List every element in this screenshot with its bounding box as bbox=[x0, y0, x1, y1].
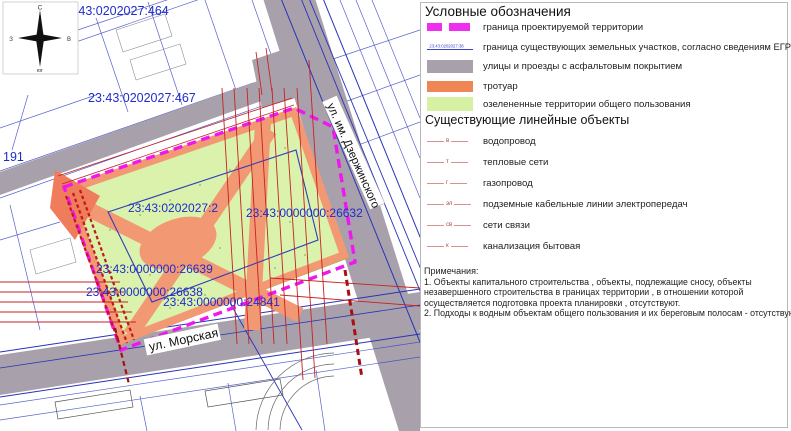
note-line: 1. Объекты капитального строительства , … bbox=[424, 277, 786, 287]
power-cable-swatch: эл bbox=[427, 201, 473, 207]
legend-item-egrn-boundary: 23:43:0202027:38 граница существующих зе… bbox=[427, 39, 791, 53]
line-marker: т bbox=[446, 159, 449, 165]
egrn-sample-number: 23:43:0202027:38 bbox=[427, 43, 466, 48]
red-line-icon bbox=[450, 183, 467, 184]
sidewalk-swatch bbox=[427, 81, 473, 92]
green-bar-icon bbox=[427, 97, 473, 111]
legend-item-power-cable-line: эл подземные кабельные линии электропере… bbox=[427, 197, 688, 211]
legend-item-label: граница существующих земельных участков,… bbox=[483, 41, 791, 52]
line-marker: св bbox=[446, 222, 452, 228]
orange-bar-icon bbox=[427, 81, 473, 92]
legend-item-label: подземные кабельные линии электропередач bbox=[483, 199, 688, 210]
gray-bar-icon bbox=[427, 60, 473, 73]
egrn-boundary-swatch: 23:43:0202027:38 bbox=[427, 43, 473, 50]
line-marker: г bbox=[446, 180, 448, 186]
red-line-icon bbox=[451, 162, 468, 163]
legend-item-label: тепловые сети bbox=[483, 157, 548, 168]
notes-title: Примечания: bbox=[424, 266, 786, 277]
line-marker: к bbox=[446, 243, 449, 249]
cadastral-map: ул. им. Дзержинского ул. Морская 23:43:0… bbox=[0, 0, 420, 431]
compass: С З В юг bbox=[3, 2, 78, 74]
legend-item-water-line: в водопровод bbox=[427, 134, 536, 148]
legend-item-gas-line: г газопровод bbox=[427, 176, 533, 190]
line-marker: в bbox=[446, 138, 449, 144]
red-line-icon bbox=[427, 141, 444, 142]
red-line-icon bbox=[427, 204, 444, 205]
compass-east-label: В bbox=[67, 37, 71, 43]
legend-item-label: улицы и проезды с асфальтовым покрытием bbox=[483, 61, 682, 72]
parcel-label: 23:43:0202027:2 bbox=[128, 201, 218, 215]
red-line-icon bbox=[454, 225, 471, 226]
plan-sheet: ул. им. Дзержинского ул. Морская 23:43:0… bbox=[0, 0, 791, 431]
red-line-icon bbox=[427, 183, 444, 184]
red-line-icon bbox=[454, 204, 471, 205]
legend-title: Условные обозначения bbox=[425, 4, 571, 19]
magenta-dash-icon bbox=[449, 23, 470, 31]
magenta-dash-icon bbox=[427, 23, 442, 31]
water-line-swatch: в bbox=[427, 138, 473, 144]
note-line: незавершенного строительства в границах … bbox=[424, 287, 786, 297]
legend-item-label: сети связи bbox=[483, 220, 530, 231]
legend-item-label: газопровод bbox=[483, 178, 533, 189]
green-territory-swatch bbox=[427, 97, 473, 111]
compass-west-label: З bbox=[9, 37, 13, 43]
red-line-icon bbox=[427, 225, 444, 226]
notes-block: Примечания: 1. Объекты капитального стро… bbox=[424, 266, 786, 318]
red-line-icon bbox=[427, 246, 444, 247]
compass-south-label: юг bbox=[37, 68, 43, 74]
red-line-icon bbox=[451, 246, 468, 247]
heating-line-swatch: т bbox=[427, 159, 473, 165]
parcel-label: 23:43:0000000:24841 bbox=[163, 295, 280, 309]
compass-north-label: С bbox=[38, 5, 43, 12]
red-line-icon bbox=[427, 162, 444, 163]
legend-item-label: граница проектируемой территории bbox=[483, 22, 643, 33]
legend-item-label: водопровод bbox=[483, 136, 536, 147]
parcel-label: 23:43:0202027:467 bbox=[88, 91, 196, 105]
legend-item-label: канализация бытовая bbox=[483, 241, 580, 252]
red-line-icon bbox=[451, 141, 468, 142]
egrn-line-icon: 23:43:0202027:38 bbox=[427, 43, 473, 50]
note-line: 2. Подходы к водным объектам общего поль… bbox=[424, 308, 786, 318]
legend-item-label: озелененные территории общего пользовани… bbox=[483, 99, 691, 110]
legend-item-green-territory: озелененные территории общего пользовани… bbox=[427, 97, 691, 111]
road-swatch bbox=[427, 60, 473, 73]
legend-item-heating-line: т тепловые сети bbox=[427, 155, 548, 169]
legend-item-label: тротуар bbox=[483, 81, 518, 92]
parcel-label: 23:43:0000000:26632 bbox=[246, 206, 363, 220]
legend-linear-section-title: Существующие линейные объекты bbox=[425, 113, 629, 127]
gas-line-swatch: г bbox=[427, 180, 473, 186]
line-marker: эл bbox=[446, 201, 452, 207]
legend-item-sidewalk: тротуар bbox=[427, 79, 518, 93]
legend-item-telecom-line: св сети связи bbox=[427, 218, 530, 232]
parcel-label: 191 bbox=[3, 150, 24, 164]
legend-item-roads: улицы и проезды с асфальтовым покрытием bbox=[427, 59, 682, 73]
project-boundary-swatch bbox=[427, 23, 473, 31]
telecom-line-swatch: св bbox=[427, 222, 473, 228]
note-line: осуществляется подготовка проекта планир… bbox=[424, 298, 786, 308]
sewer-line-swatch: к bbox=[427, 243, 473, 249]
legend-item-sewer-line: к канализация бытовая bbox=[427, 239, 580, 253]
legend-item-project-boundary: граница проектируемой территории bbox=[427, 20, 643, 34]
parcel-label: 23:43:0000000:26639 bbox=[96, 262, 213, 276]
